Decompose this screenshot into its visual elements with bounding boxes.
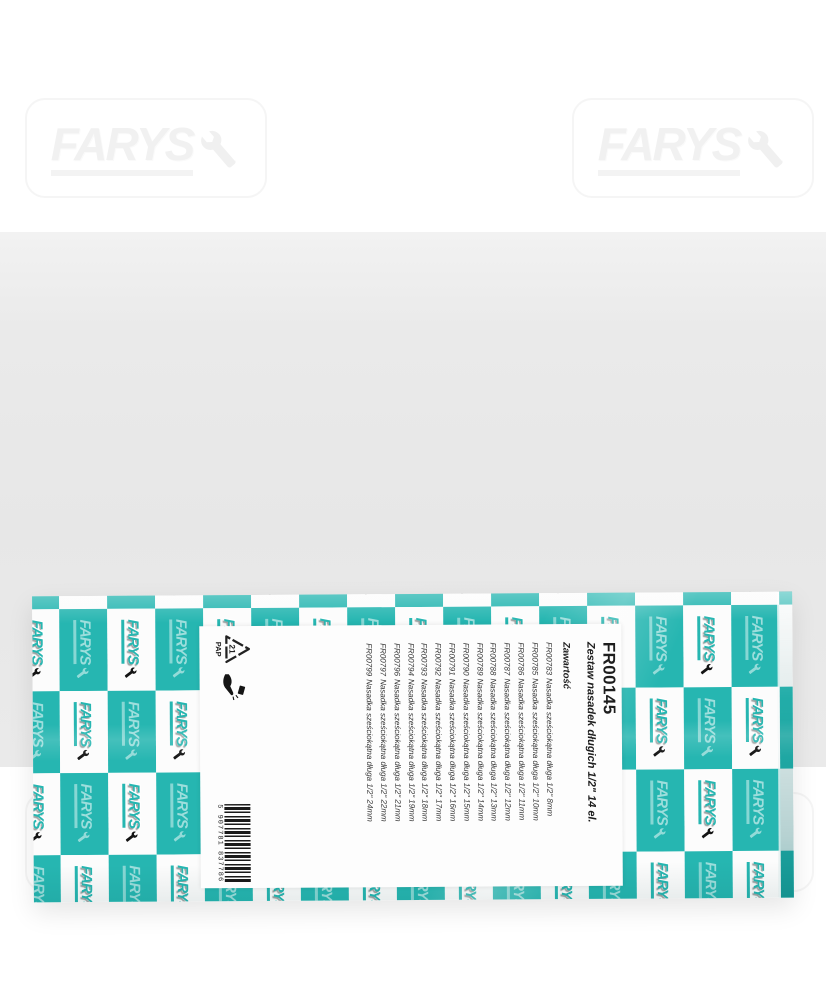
wrench-icon: [315, 592, 330, 598]
wrench-icon: [172, 666, 187, 681]
farys-ghost-logo: FARYS: [32, 695, 56, 769]
farys-logo-text: FARYS: [746, 697, 765, 742]
farys-cell-logo: FARYS: [63, 592, 103, 605]
farys-ghost-logo: FARYS: [160, 776, 200, 850]
wrench-icon: [219, 592, 234, 599]
wrench-icon: [744, 124, 791, 171]
farys-cell-logo: FARYS: [351, 592, 391, 604]
farys-logo-text: FARYS: [75, 784, 94, 829]
wrench-icon: [267, 592, 282, 599]
wrench-icon: [172, 748, 187, 763]
wrench-icon: [197, 124, 244, 171]
wrench-icon: [32, 667, 43, 682]
farys-logo-text: FARYS: [122, 619, 141, 664]
farys-watermark-text: FARYS: [598, 121, 741, 176]
checker-cell-white: FARYS: [32, 773, 61, 855]
checker-cell-white: FARYS: [157, 854, 206, 902]
recycle-material-text: PAP: [214, 642, 223, 657]
list-item: FR00791Nasadka sześciokątna długa 1/2" 1…: [445, 643, 460, 879]
farys-cell-logo: FARYS: [641, 855, 681, 902]
wrench-icon: [699, 592, 714, 596]
farys-logo-text: FARYS: [650, 616, 669, 661]
list-item: FR00794Nasadka sześciokątna długa 1/2" 1…: [403, 643, 418, 879]
wrench-icon: [75, 592, 90, 600]
wrench-icon: [32, 592, 43, 600]
farys-ghost-logo: FARYS: [735, 609, 775, 683]
farys-cell-logo: FARYS: [735, 592, 775, 601]
farys-watermark-text: FARYS: [51, 121, 194, 176]
farys-cell-logo: FARYS: [688, 773, 728, 847]
list-item: FR00793Nasadka sześciokątna długa 1/2" 1…: [417, 643, 432, 879]
list-item: FR00788Nasadka sześciokątna długa 1/2" 1…: [486, 642, 501, 878]
checker-cell-teal: FARYS: [156, 772, 205, 854]
wrench-icon: [411, 592, 426, 598]
product-box: FARYSFARYSFARYSFARYSFARYSFARYSFARYSFARYS…: [32, 592, 794, 903]
farys-watermark-top-left: FARYS: [25, 98, 267, 198]
farys-logo-text: FARYS: [651, 862, 670, 902]
list-item: FR00797Nasadka sześciokątna długa 1/2" 2…: [376, 643, 391, 879]
farys-cell-logo: FARYS: [32, 777, 57, 851]
wrench-icon: [123, 592, 138, 600]
farys-logo-text: FARYS: [698, 698, 717, 743]
checker-cell-white: FARYS: [732, 687, 781, 769]
farys-ghost-logo: FARYS: [689, 855, 729, 902]
checker-cell-teal: FARYS: [635, 605, 684, 687]
farys-ghost-logo: FARYS: [640, 773, 680, 847]
checker-cell-white: FARYS: [731, 592, 780, 605]
checker-cell-white: FARYS: [539, 592, 588, 607]
wrench-icon: [124, 666, 139, 681]
checker-cell-white: FARYS: [60, 691, 109, 773]
checker-cell-white: FARYS: [251, 592, 300, 608]
checker-cell-teal: FARYS: [32, 691, 60, 773]
wrench-icon: [700, 662, 715, 677]
wrench-icon: [125, 830, 140, 845]
checker-cell-white: FARYS: [443, 592, 492, 607]
wrench-icon: [747, 592, 762, 596]
farys-ghost-logo: FARYS: [159, 612, 199, 686]
farys-cell-logo: FARYS: [160, 694, 200, 768]
list-item: FR00787Nasadka sześciokątna długa 1/2" 1…: [500, 642, 515, 878]
checker-cell-white: FARYS: [59, 592, 108, 609]
farys-logo-text: FARYS: [74, 620, 93, 665]
checker-cell-white: FARYS: [637, 851, 686, 902]
checker-cell-teal: FARYS: [155, 608, 204, 690]
farys-logo-text: FARYS: [171, 783, 190, 828]
product-label: FR00145 Zestaw nasadek długich 1/2" 14 e…: [199, 624, 623, 889]
checker-cell-teal: FARYS: [107, 592, 156, 609]
farys-ghost-logo: FARYS: [32, 859, 57, 902]
wrench-icon: [652, 745, 667, 760]
checker-cell-white: FARYS: [733, 851, 782, 903]
checker-cell-teal: FARYS: [587, 592, 636, 606]
pap-recycling-icon: 21 PAP: [213, 634, 251, 664]
list-item: FR00783Nasadka sześciokątna długa 1/2" 8…: [541, 642, 556, 878]
checker-cell-teal: FARYS: [59, 609, 108, 691]
list-item: FR00786Nasadka sześciokątna długa 1/2" 1…: [514, 642, 529, 878]
farys-ghost-logo: FARYS: [63, 613, 103, 687]
farys-logo-text: FARYS: [170, 701, 189, 746]
farys-cell-logo: FARYS: [111, 613, 151, 687]
farys-logo-text: FARYS: [32, 866, 46, 902]
farys-cell-logo: FARYS: [447, 592, 487, 603]
wrench-icon: [32, 830, 44, 845]
product-label-content: FR00145 Zestaw nasadek długich 1/2" 14 e…: [199, 624, 623, 889]
wrench-icon: [700, 744, 715, 759]
wrench-icon: [76, 666, 91, 681]
farys-logo-text: FARYS: [75, 866, 94, 903]
checker-cell-teal: FARYS: [491, 592, 539, 607]
farys-logo-text: FARYS: [746, 615, 765, 660]
farys-logo-text: FARYS: [74, 702, 93, 747]
barcode-bars: [224, 804, 250, 882]
checker-cell-teal: FARYS: [684, 687, 733, 769]
checker-cell-teal: FARYS: [203, 592, 252, 609]
farys-cell-logo: FARYS: [161, 858, 201, 902]
checker-cell-teal: FARYS: [395, 592, 444, 607]
farys-ghost-logo: FARYS: [591, 592, 631, 602]
farys-ghost-logo: FARYS: [495, 592, 535, 603]
farys-ghost-logo: FARYS: [639, 609, 679, 683]
checker-cell-teal: FARYS: [683, 592, 732, 606]
farys-ghost-logo: FARYS: [399, 592, 439, 603]
list-item: FR00790Nasadka sześciokątna długa 1/2" 1…: [458, 643, 473, 879]
wrench-icon: [653, 827, 668, 842]
wrench-icon: [173, 830, 188, 845]
checker-cell-white: FARYS: [636, 687, 685, 769]
farys-ghost-logo: FARYS: [32, 592, 55, 606]
checker-cell-teal: FARYS: [32, 855, 61, 902]
checker-cell-teal: FARYS: [732, 769, 781, 851]
farys-logo-text: FARYS: [699, 780, 718, 825]
checker-cell-teal: FARYS: [32, 592, 59, 610]
checker-cell-teal: FARYS: [60, 773, 109, 855]
farys-cell-logo: FARYS: [255, 592, 295, 604]
checker-cell-teal: FARYS: [731, 605, 780, 687]
list-item: FR00792Nasadka sześciokątna długa 1/2" 1…: [431, 643, 446, 879]
list-item: FR00785Nasadka sześciokątna długa 1/2" 1…: [527, 642, 542, 878]
barcode-number: 5 907781 837786: [215, 804, 223, 882]
list-item: FR00796Nasadka sześciokątna długa 1/2" 2…: [389, 643, 404, 879]
wrench-icon: [603, 592, 618, 597]
product-name: Zestaw nasadek długich 1/2" 14 el.: [583, 642, 598, 878]
checker-cell-teal: FARYS: [299, 592, 348, 608]
farys-ghost-logo: FARYS: [687, 592, 727, 602]
wrench-icon: [651, 592, 666, 596]
checker-cell-white: FARYS: [61, 855, 110, 902]
barcode: 5 907781 837786: [210, 804, 250, 882]
farys-logo-text: FARYS: [747, 861, 766, 902]
product-code: FR00145: [598, 642, 621, 878]
farys-logo-text: FARYS: [170, 619, 189, 664]
farys-logo-text: FARYS: [123, 783, 142, 828]
checker-cell-teal: FARYS: [108, 691, 157, 773]
littering-icon: [218, 672, 246, 700]
checker-cell-teal: FARYS: [109, 855, 158, 903]
contents-heading: Zawartość: [560, 642, 572, 878]
farys-ghost-logo: FARYS: [736, 773, 776, 847]
wrench-icon: [124, 748, 139, 763]
farys-ghost-logo: FARYS: [112, 695, 152, 769]
farys-ghost-logo: FARYS: [688, 691, 728, 765]
farys-logo-text: FARYS: [698, 616, 717, 661]
farys-cell-logo: FARYS: [32, 613, 56, 687]
farys-logo-text: FARYS: [32, 784, 46, 829]
farys-ghost-logo: FARYS: [64, 777, 104, 851]
farys-cell-logo: FARYS: [640, 691, 680, 765]
checker-cell-white: FARYS: [156, 690, 205, 772]
farys-logo-text: FARYS: [699, 862, 718, 903]
farys-logo-text: FARYS: [32, 702, 45, 747]
farys-cell-logo: FARYS: [639, 592, 679, 602]
checker-cell-teal: FARYS: [636, 769, 685, 851]
checker-cell-white: FARYS: [347, 592, 396, 608]
recycle-code-text: 21: [227, 644, 236, 654]
checker-cell-white: FARYS: [32, 609, 60, 691]
checker-cell-white: FARYS: [107, 609, 156, 691]
checker-cell-white: FARYS: [635, 592, 684, 606]
farys-cell-logo: FARYS: [112, 777, 152, 851]
farys-cell-logo: FARYS: [64, 695, 104, 769]
wrench-icon: [459, 592, 474, 598]
wrench-icon: [748, 744, 763, 759]
wrench-icon: [555, 592, 570, 597]
farys-logo-text: FARYS: [122, 701, 141, 746]
wrench-icon: [77, 830, 92, 845]
checker-cell-teal: FARYS: [685, 851, 734, 902]
farys-cell-logo: FARYS: [543, 592, 583, 603]
checker-cell-white: FARYS: [683, 605, 732, 687]
farys-logo-text: FARYS: [123, 865, 142, 902]
farys-ghost-logo: FARYS: [111, 592, 151, 605]
contents-list: FR00783Nasadka sześciokątna długa 1/2" 8…: [362, 642, 557, 879]
farys-cell-logo: FARYS: [65, 859, 105, 902]
wrench-icon: [749, 826, 764, 841]
farys-cell-logo: FARYS: [687, 609, 727, 683]
farys-ghost-logo: FARYS: [113, 859, 153, 903]
wrench-icon: [171, 592, 186, 599]
box-side-face: [777, 592, 794, 898]
farys-logo-text: FARYS: [32, 620, 45, 665]
farys-cell-logo: FARYS: [159, 592, 199, 605]
wrench-icon: [507, 592, 522, 597]
wrench-icon: [701, 826, 716, 841]
checker-cell-white: FARYS: [108, 773, 157, 855]
wrench-icon: [76, 748, 91, 763]
farys-logo-text: FARYS: [651, 780, 670, 825]
farys-cell-logo: FARYS: [736, 691, 776, 765]
farys-ghost-logo: FARYS: [303, 592, 343, 604]
farys-ghost-logo: FARYS: [207, 592, 247, 605]
photo-background: FARYSFARYSFARYSFARYSFARYSFARYSFARYSFARYS…: [0, 232, 826, 767]
wrench-icon: [32, 748, 44, 763]
farys-logo-text: FARYS: [650, 698, 669, 743]
wrench-icon: [363, 592, 378, 598]
wrench-icon: [748, 662, 763, 677]
farys-logo-text: FARYS: [171, 865, 190, 902]
checker-cell-white: FARYS: [684, 769, 733, 851]
wrench-icon: [652, 663, 667, 678]
farys-logo-text: FARYS: [747, 779, 766, 824]
list-item: FR00789Nasadka sześciokątna długa 1/2" 1…: [472, 643, 487, 879]
farys-watermark-top-right: FARYS: [572, 98, 814, 198]
checker-cell-white: FARYS: [155, 592, 204, 609]
list-item: FR00799Nasadka sześciokątna długa 1/2" 2…: [362, 643, 377, 879]
farys-cell-logo: FARYS: [737, 855, 777, 903]
